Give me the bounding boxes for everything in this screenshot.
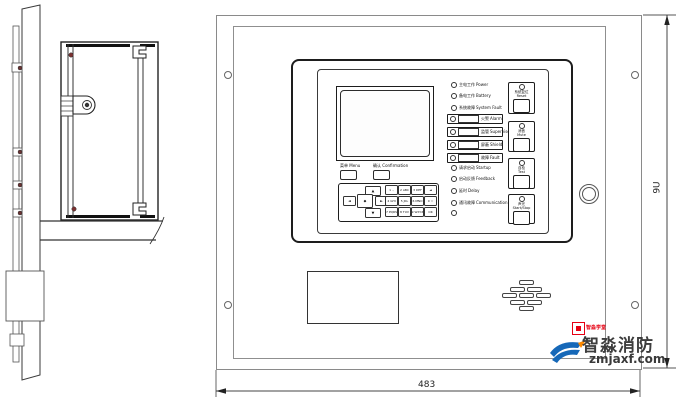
arrow-down-key: ▼ <box>365 208 381 218</box>
label-plate <box>307 271 399 324</box>
led-dot <box>451 210 457 216</box>
key-1: 1 ., <box>385 185 398 195</box>
led-supervise: 监管Supervise <box>447 127 503 137</box>
lcd-display <box>336 86 434 161</box>
led-dot <box>451 82 457 88</box>
led-dot <box>451 93 457 99</box>
indicator-window <box>458 141 479 149</box>
key-5: 5 JKL <box>398 196 411 206</box>
menu-button <box>340 170 357 180</box>
test-key <box>513 175 530 189</box>
key-0: 0 ☆ <box>424 196 437 206</box>
screw-hole <box>224 301 232 309</box>
key-ok: OK <box>424 207 437 217</box>
mute-button-group: 消音Mute <box>508 121 535 152</box>
center-key: ◆ <box>357 194 373 208</box>
key-2: 2 ABC <box>398 185 411 195</box>
led-communication: 通讯故障Communication <box>451 199 508 207</box>
led-dot <box>451 176 457 182</box>
led-fault: 故障Fault <box>447 153 503 163</box>
led-spare <box>451 209 457 217</box>
key-4: 4 GHI <box>385 196 398 206</box>
confirm-button <box>373 170 390 180</box>
led-dot <box>450 142 456 148</box>
start-stop-button-group: 声光Start/Stop <box>508 194 535 224</box>
width-dimension: 483 <box>416 381 437 390</box>
key-7: 7 PQRS <box>385 207 398 217</box>
led-dot <box>450 129 456 135</box>
screw-hole <box>224 71 232 79</box>
drawing-canvas: 菜单 Menu 确认 Confirmation ▲ ◄ ◆ ► ▼ 1 ., 2… <box>0 0 677 401</box>
hinge-pin <box>18 150 22 154</box>
led-alarm: 火警Alarm <box>447 114 503 124</box>
screw-hole <box>631 301 639 309</box>
key-9: 9 WXYZ <box>411 207 424 217</box>
hinge-pin <box>18 66 22 70</box>
speaker-grille <box>501 280 551 311</box>
key-8: 8 TUV <box>398 207 411 217</box>
indicator-window <box>458 128 479 136</box>
led-dot <box>451 105 457 111</box>
panel-lock-inner <box>582 187 596 201</box>
hinge-pin <box>18 211 22 215</box>
height-dimension: 9U <box>654 179 663 195</box>
confirm-label: 确认 Confirmation <box>373 164 408 168</box>
led-dot <box>450 155 456 161</box>
led-startup: 请求启动Startup <box>451 164 491 172</box>
key-6: 6 MNO <box>411 196 424 206</box>
led-delay: 延时Delay <box>451 187 479 195</box>
led-battery: 备电工作Battery <box>451 92 491 100</box>
domain-text: zmjaxf.com <box>589 352 665 366</box>
reset-button-group: 系统复位Reset <box>508 82 535 114</box>
led-system-fault: 系统故障System Fault <box>451 104 502 112</box>
badge-text: 智淼学堂 <box>586 324 606 331</box>
mute-key <box>513 138 530 152</box>
led-feedback: 启动反馈Feedback <box>451 175 495 183</box>
reset-key <box>513 99 530 113</box>
led-dot <box>451 165 457 171</box>
key-back: ◄ <box>424 185 437 195</box>
led-dot <box>450 116 456 122</box>
screw-hole <box>631 71 639 79</box>
test-button-group: 自检Test <box>508 158 535 189</box>
led-shield: 屏蔽Shield <box>447 140 503 150</box>
hinge-pin <box>18 183 22 187</box>
led-dot <box>451 188 457 194</box>
key-3: 3 DEF <box>411 185 424 195</box>
led-power: 主电工作Power <box>451 81 488 89</box>
front-panel-outline: 菜单 Menu 确认 Confirmation ▲ ◄ ◆ ► ▼ 1 ., 2… <box>216 15 642 370</box>
start-stop-key <box>513 211 530 225</box>
side-door-plate <box>22 5 40 380</box>
side-view-drawing <box>0 0 210 401</box>
side-junction-box <box>6 271 44 321</box>
panel-lock <box>579 184 599 204</box>
lcd-screen <box>340 90 430 157</box>
keypad-panel: ▲ ◄ ◆ ► ▼ 1 ., 2 ABC 3 DEF ◄ 4 GHI 5 JKL… <box>338 183 439 222</box>
indicator-window <box>458 154 479 162</box>
led-dot <box>451 200 457 206</box>
watermark: 智淼学堂 智淼消防 zmjaxf.com <box>548 320 677 382</box>
arrow-left-key: ◄ <box>343 196 356 206</box>
menu-label: 菜单 Menu <box>340 164 360 168</box>
indicator-window <box>458 115 479 123</box>
